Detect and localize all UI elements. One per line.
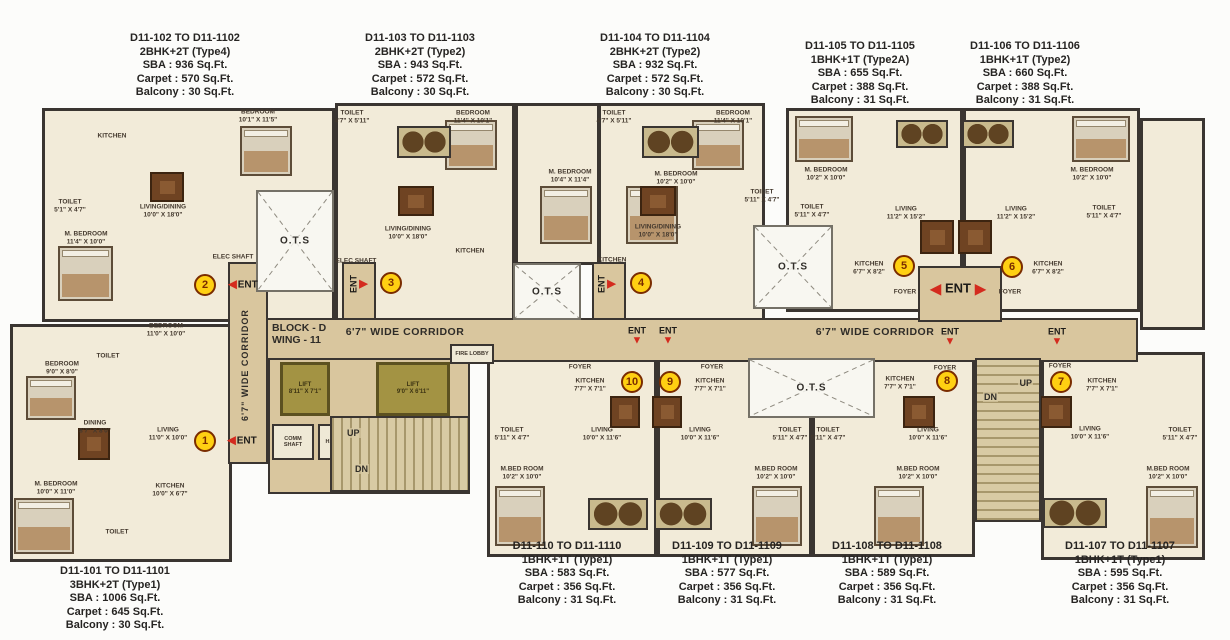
- room-name: LIVING/DINING: [140, 204, 186, 212]
- ent-arrow-left-icon: ◀: [930, 281, 941, 295]
- ent-arrow-right-icon: ▶: [607, 279, 615, 290]
- room-label: KITCHEN6'7" X 8'2": [1032, 261, 1064, 276]
- room-label: M. BEDROOM10'2" X 10'0": [805, 167, 848, 182]
- room-name: TOILET: [1163, 427, 1198, 435]
- unit-info-105: D11-105 TO D11-1105 1BHK+1T (Type2A) SBA…: [765, 40, 955, 108]
- balcony-planter: [896, 120, 948, 148]
- ent-arrow-right-icon: ▶: [975, 281, 986, 295]
- lift-label: LIFT: [299, 382, 312, 389]
- room-name: LIVING: [681, 427, 720, 435]
- room-dimension: 10'0" X 11'6": [909, 434, 948, 442]
- unit-balcony: Balcony : 30 Sq.Ft.: [20, 619, 210, 633]
- unit-sba: SBA : 595 Sq.Ft.: [1025, 567, 1215, 581]
- room-dimension: 8'7" X 8'0": [79, 427, 111, 435]
- room-name: TOILET: [54, 199, 86, 207]
- bed-pillow: [449, 124, 493, 131]
- bed-blanket: [878, 517, 920, 542]
- unit-number-badge: 7: [1050, 371, 1072, 393]
- room-name: BEDROOM: [45, 361, 79, 369]
- bed-pillow: [18, 502, 70, 509]
- unit-info-103: D11-103 TO D11-1103 2BHK+2T (Type2) SBA …: [325, 32, 515, 100]
- bed-furniture: [692, 120, 744, 170]
- room-name: BEDROOM: [147, 323, 186, 331]
- dining-table: [920, 220, 954, 254]
- room-name: ELEC SHAFT: [336, 257, 377, 265]
- ent-arrow-right-icon: ▶: [359, 279, 367, 290]
- unit-number-badge: 2: [194, 274, 216, 296]
- bed-furniture: [14, 498, 74, 554]
- ent-arrow-down-icon: ▼: [1052, 337, 1063, 348]
- room-dimension: 6'7" X 8'2": [853, 268, 885, 276]
- corridor-label-left: 6'7" WIDE CORRIDOR: [330, 326, 480, 338]
- bed-pillow: [756, 490, 798, 497]
- room-label: TOILET5'11" X 4'7": [795, 204, 830, 219]
- room-name: LIVING/DINING: [385, 226, 431, 234]
- unit-range: D11-107 TO D11-1107: [1025, 540, 1215, 554]
- room-name: KITCHEN: [694, 378, 726, 386]
- unit-carpet: Carpet : 572 Sq.Ft.: [560, 73, 750, 87]
- room-name: LIVING: [887, 206, 926, 214]
- room-name: M. BEDROOM: [805, 167, 848, 175]
- room-label: FOYER: [569, 363, 591, 371]
- room-dimension: 10'0" X 18'0": [140, 211, 186, 219]
- room-name: FOYER: [1049, 362, 1071, 370]
- corridor-label-vertical: 6'7" WIDE CORRIDOR: [240, 300, 250, 430]
- room-name: TOILET: [97, 352, 120, 360]
- room-label: FOYER: [1049, 362, 1071, 370]
- unit-range: D11-103 TO D11-1103: [325, 32, 515, 46]
- room-name: TOILET: [495, 427, 530, 435]
- unit-info-108: D11-108 TO D11-1108 1BHK+1T (Type1) SBA …: [792, 540, 982, 608]
- room-dimension: 10'0" X 18'0": [635, 231, 681, 239]
- room-name: LIVING: [997, 206, 1036, 214]
- room-name: M. BEDROOM: [35, 481, 78, 489]
- entrance-marker: ◀ENT▶: [930, 281, 986, 296]
- entrance-marker: ◀ENT: [227, 436, 256, 447]
- room-name: KITCHEN: [884, 376, 916, 384]
- room-dimension: 4'7" X 5'11": [597, 117, 632, 125]
- room-name: KITCHEN: [598, 256, 627, 264]
- room-label: KITCHEN: [98, 132, 127, 140]
- unit-range: D11-105 TO D11-1105: [765, 40, 955, 54]
- bed-pillow: [696, 124, 740, 131]
- bed-furniture: [58, 246, 113, 301]
- ots-label: O.T.S: [776, 262, 810, 273]
- unit-balcony: Balcony : 31 Sq.Ft.: [1025, 594, 1215, 608]
- unit-balcony: Balcony : 30 Sq.Ft.: [560, 86, 750, 100]
- stairs-left: UP DN: [330, 416, 470, 492]
- balcony-planter: [588, 498, 648, 530]
- room-name: TOILET: [335, 110, 370, 118]
- room-name: ELEC SHAFT: [213, 253, 254, 261]
- dining-table: [903, 396, 935, 428]
- room-label: DINING8'7" X 8'0": [79, 420, 111, 435]
- bed-pillow: [30, 380, 72, 387]
- stairs-up-label: UP: [1018, 378, 1033, 388]
- unit-type: 3BHK+2T (Type1): [20, 579, 210, 593]
- ent-label: ENT: [238, 280, 258, 291]
- room-label: M. BEDROOM11'4" X 10'0": [65, 231, 108, 246]
- bed-pillow: [1076, 120, 1126, 127]
- unit-info-101: D11-101 TO D11-1101 3BHK+2T (Type1) SBA …: [20, 565, 210, 633]
- ots-label: O.T.S: [278, 236, 312, 247]
- unit-number-badge: 5: [893, 255, 915, 277]
- unit-number-badge: 3: [380, 272, 402, 294]
- room-name: TOILET: [773, 427, 808, 435]
- entrance-marker: ENT▼: [659, 326, 677, 347]
- unit-type: 1BHK+1T (Type2A): [765, 54, 955, 68]
- lift-dim: 8'11" X 7'1": [289, 389, 321, 396]
- unit-number-badge: 10: [621, 371, 643, 393]
- ots-label: O.T.S: [794, 383, 828, 394]
- room-name: TOILET: [106, 528, 129, 536]
- unit-type: 2BHK+2T (Type2): [325, 46, 515, 60]
- room-name: M.BED ROOM: [897, 466, 940, 474]
- room-label: M.BED ROOM10'2" X 10'0": [897, 466, 940, 481]
- ent-arrow-down-icon: ▼: [632, 336, 643, 347]
- room-label: BEDROOM11'4" X 10'1": [454, 110, 493, 125]
- unit-sba: SBA : 932 Sq.Ft.: [560, 59, 750, 73]
- room-name: M.BED ROOM: [501, 466, 544, 474]
- room-label: BEDROOM10'1" X 11'5": [239, 109, 278, 124]
- room-label: FOYER: [999, 288, 1021, 296]
- room-name: KITCHEN: [98, 132, 127, 140]
- ent-label: ENT: [945, 281, 971, 296]
- balcony-planter: [1043, 498, 1107, 528]
- room-label: M. BEDROOM10'2" X 10'0": [655, 171, 698, 186]
- room-dimension: 6'7" X 8'2": [1032, 268, 1064, 276]
- room-dimension: 10'0" X 18'0": [385, 233, 431, 241]
- room-dimension: 10'0" X 11'6": [1071, 433, 1110, 441]
- room-dimension: 11'2" X 15'2": [887, 213, 926, 221]
- balcony-planter: [654, 498, 712, 530]
- room-dimension: 10'2" X 10'0": [501, 473, 544, 481]
- balcony-planter: [642, 126, 699, 158]
- corridor-horizontal: [266, 318, 1138, 362]
- entrance-marker: ENT▶: [348, 275, 367, 293]
- dining-table: [150, 172, 184, 202]
- room-dimension: 11'4" X 10'1": [714, 117, 753, 125]
- ots-label: O.T.S: [530, 286, 564, 297]
- unit-number-badge: 9: [659, 371, 681, 393]
- bed-furniture: [540, 186, 592, 244]
- room-label: TOILET5'11" X 4'7": [745, 189, 780, 204]
- unit-carpet: Carpet : 388 Sq.Ft.: [765, 81, 955, 95]
- room-dimension: 10'2" X 10'0": [897, 473, 940, 481]
- room-label: LIVING11'0" X 10'0": [149, 427, 188, 442]
- entrance-marker: ENT▶: [596, 275, 615, 293]
- room-label: M.BED ROOM10'2" X 10'0": [755, 466, 798, 481]
- ent-label: ENT: [237, 436, 257, 447]
- room-name: KITCHEN: [1086, 378, 1118, 386]
- bed-furniture: [795, 116, 853, 162]
- room-label: TOILET5'11" X 4'7": [495, 427, 530, 442]
- bed-furniture: [445, 120, 497, 170]
- unit-info-106: D11-106 TO D11-1106 1BHK+1T (Type2) SBA …: [930, 40, 1120, 108]
- unit-balcony: Balcony : 30 Sq.Ft.: [90, 86, 280, 100]
- room-dimension: 10'2" X 10'0": [805, 174, 848, 182]
- room-dimension: 7'7" X 7'1": [574, 385, 606, 393]
- room-name: M. BEDROOM: [1071, 167, 1114, 175]
- unit-info-102: D11-102 TO D11-1102 2BHK+2T (Type4) SBA …: [90, 32, 280, 100]
- room-label: ELEC SHAFT: [213, 253, 254, 261]
- room-name: M. BEDROOM: [655, 171, 698, 179]
- unit-carpet: Carpet : 645 Sq.Ft.: [20, 606, 210, 620]
- lift-2: LIFT 9'0" X 6'11": [376, 362, 450, 416]
- bed-furniture: [26, 376, 76, 420]
- ent-arrow-left-icon: ◀: [228, 280, 236, 291]
- lift-dim: 9'0" X 6'11": [397, 389, 429, 396]
- room-name: M. BEDROOM: [549, 169, 592, 177]
- bed-blanket: [449, 145, 493, 166]
- lift-label: LIFT: [407, 382, 420, 389]
- room-dimension: 9'0" X 8'0": [45, 368, 79, 376]
- room-label: TOILET5'11" X 4'7": [773, 427, 808, 442]
- room-name: FOYER: [701, 363, 723, 371]
- stairs-up-label: UP: [346, 428, 361, 438]
- unit-sba: SBA : 655 Sq.Ft.: [765, 67, 955, 81]
- bed-pillow: [878, 490, 920, 497]
- room-label: KITCHEN7'7" X 7'1": [694, 378, 726, 393]
- room-label: LIVING11'2" X 15'2": [997, 206, 1036, 221]
- room-label: LIVING10'0" X 11'6": [1071, 426, 1110, 441]
- unit-balcony: Balcony : 31 Sq.Ft.: [930, 94, 1120, 108]
- room-name: M.BED ROOM: [755, 466, 798, 474]
- room-name: DINING: [79, 420, 111, 428]
- ots-shaft: O.T.S: [748, 358, 875, 418]
- room-dimension: 5'11" X 4'7": [1163, 434, 1198, 442]
- comm-shaft-label: COMM SHAFT: [275, 436, 311, 448]
- dining-table: [958, 220, 992, 254]
- room-dimension: 10'2" X 10'0": [1071, 174, 1114, 182]
- unit-carpet: Carpet : 356 Sq.Ft.: [792, 581, 982, 595]
- room-label: TOILET: [106, 528, 129, 536]
- bed-blanket: [1076, 139, 1126, 158]
- unit-info-107: D11-107 TO D11-1107 1BHK+1T (Type1) SBA …: [1025, 540, 1215, 608]
- room-dimension: 7'7" X 7'1": [694, 385, 726, 393]
- corridor-label-right: 6'7" WIDE CORRIDOR: [800, 326, 950, 338]
- room-dimension: 11'4" X 10'1": [454, 117, 493, 125]
- room-label: TOILET: [97, 352, 120, 360]
- room-name: FOYER: [999, 288, 1021, 296]
- dining-table: [610, 396, 640, 428]
- room-label: FOYER: [701, 363, 723, 371]
- room-label: KITCHEN6'7" X 8'2": [853, 261, 885, 276]
- room-name: M.BED ROOM: [1147, 466, 1190, 474]
- room-dimension: 11'0" X 10'0": [147, 330, 186, 338]
- unit-carpet: Carpet : 356 Sq.Ft.: [1025, 581, 1215, 595]
- room-name: M. BEDROOM: [65, 231, 108, 239]
- room-label: KITCHEN7'7" X 7'1": [574, 378, 606, 393]
- unit-balcony: Balcony : 30 Sq.Ft.: [325, 86, 515, 100]
- unit-number-badge: 1: [194, 430, 216, 452]
- fire-lobby: FIRE LOBBY: [450, 344, 494, 364]
- room-dimension: 11'2" X 15'2": [997, 213, 1036, 221]
- room-name: KITCHEN: [1032, 261, 1064, 269]
- unit-sba: SBA : 589 Sq.Ft.: [792, 567, 982, 581]
- room-name: TOILET: [1087, 205, 1122, 213]
- room-dimension: 10'1" X 11'5": [239, 116, 278, 124]
- room-dimension: 10'2" X 10'0": [655, 178, 698, 186]
- unit-type: 1BHK+1T (Type1): [792, 554, 982, 568]
- unit-carpet: Carpet : 388 Sq.Ft.: [930, 81, 1120, 95]
- bed-pillow: [1150, 490, 1194, 497]
- unit-type: 1BHK+1T (Type2): [930, 54, 1120, 68]
- room-label: LIVING/DINING10'0" X 18'0": [140, 204, 186, 219]
- bed-furniture: [240, 126, 292, 176]
- room-dimension: 5'11" X 4'7": [795, 211, 830, 219]
- bed-blanket: [244, 151, 288, 172]
- room-dimension: 7'7" X 7'1": [1086, 385, 1118, 393]
- room-name: BEDROOM: [454, 110, 493, 118]
- room-dimension: 4'7" X 5'11": [335, 117, 370, 125]
- room-dimension: 5'11" X 4'7": [1087, 212, 1122, 220]
- lift-1: LIFT 8'11" X 7'1": [280, 362, 330, 416]
- bed-blanket: [799, 139, 849, 158]
- room-label: FOYER: [894, 288, 916, 296]
- ots-shaft: O.T.S: [753, 225, 833, 309]
- unit-type: 2BHK+2T (Type2): [560, 46, 750, 60]
- unit-balcony: Balcony : 31 Sq.Ft.: [765, 94, 955, 108]
- balcony-planter: [397, 126, 451, 158]
- room-label: LIVING/DINING10'0" X 18'0": [385, 226, 431, 241]
- bed-blanket: [30, 398, 72, 416]
- unit-number-badge: 8: [936, 370, 958, 392]
- dining-table: [1040, 396, 1072, 428]
- unit-sba: SBA : 943 Sq.Ft.: [325, 59, 515, 73]
- room-name: LIVING: [909, 427, 948, 435]
- stairs-dn-label: DN: [983, 392, 998, 402]
- unit-number-badge: 4: [630, 272, 652, 294]
- room-dimension: 5'11" X 4'7": [773, 434, 808, 442]
- bed-furniture: [495, 486, 545, 546]
- entrance-marker: ENT▼: [628, 326, 646, 347]
- entrance-marker: ENT▼: [1048, 327, 1066, 348]
- bed-blanket: [499, 517, 541, 542]
- room-label: KITCHEN10'0" X 6'7": [152, 483, 187, 498]
- room-label: M.BED ROOM10'2" X 10'0": [501, 466, 544, 481]
- ots-shaft: O.T.S: [513, 263, 581, 320]
- unit-range: D11-104 TO D11-1104: [560, 32, 750, 46]
- bed-furniture: [874, 486, 924, 546]
- room-name: TOILET: [795, 204, 830, 212]
- room-label: M.BED ROOM10'2" X 10'0": [1147, 466, 1190, 481]
- room-label: TOILET5'11" X 4'7": [811, 427, 846, 442]
- unit-type: 2BHK+2T (Type4): [90, 46, 280, 60]
- unit-range: D11-106 TO D11-1106: [930, 40, 1120, 54]
- room-name: BEDROOM: [714, 110, 753, 118]
- room-label: TOILET4'7" X 5'11": [597, 110, 632, 125]
- bed-pillow: [244, 130, 288, 137]
- ent-label: ENT: [596, 275, 606, 293]
- room-dimension: 7'7" X 7'1": [884, 383, 916, 391]
- room-dimension: 10'0" X 6'7": [152, 490, 187, 498]
- room-label: KITCHEN: [456, 247, 485, 255]
- bed-pillow: [544, 190, 588, 197]
- room-dimension: 5'11" X 4'7": [495, 434, 530, 442]
- room-name: TOILET: [745, 189, 780, 197]
- room-label: BEDROOM11'4" X 10'1": [714, 110, 753, 125]
- unit-sba: SBA : 936 Sq.Ft.: [90, 59, 280, 73]
- room-label: KITCHEN7'7" X 7'1": [1086, 378, 1118, 393]
- dining-table: [652, 396, 682, 428]
- unit-range: D11-108 TO D11-1108: [792, 540, 982, 554]
- fire-lobby-label: FIRE LOBBY: [455, 351, 488, 357]
- ent-arrow-down-icon: ▼: [945, 337, 956, 348]
- bed-blanket: [18, 527, 70, 550]
- room-label: TOILET5'1" X 4'7": [54, 199, 86, 214]
- unit-number-badge: 6: [1001, 256, 1023, 278]
- ent-arrow-down-icon: ▼: [663, 336, 674, 347]
- room-name: TOILET: [597, 110, 632, 118]
- room-label: LIVING10'0" X 11'6": [909, 427, 948, 442]
- ent-arrow-left-icon: ◀: [227, 436, 235, 447]
- unit-type: 1BHK+1T (Type1): [1025, 554, 1215, 568]
- bed-furniture: [752, 486, 802, 546]
- room-label: ELEC SHAFT: [336, 257, 377, 265]
- room-name: LIVING: [149, 427, 188, 435]
- balcony-planter: [962, 120, 1014, 148]
- room-name: FOYER: [894, 288, 916, 296]
- room-label: BEDROOM11'0" X 10'0": [147, 323, 186, 338]
- room-dimension: 10'2" X 10'0": [755, 473, 798, 481]
- dining-table: [398, 186, 434, 216]
- entrance-marker: ◀ENT: [228, 280, 257, 291]
- bed-blanket: [696, 145, 740, 166]
- bed-pillow: [499, 490, 541, 497]
- stairs-right: DN UP: [975, 358, 1041, 522]
- ots-shaft: O.T.S: [256, 190, 334, 292]
- unit-range: D11-101 TO D11-1101: [20, 565, 210, 579]
- room-label: M. BEDROOM10'4" X 11'4": [549, 169, 592, 184]
- comm-shaft: COMM SHAFT: [272, 424, 314, 460]
- room-name: KITCHEN: [574, 378, 606, 386]
- room-label: LIVING10'0" X 11'6": [681, 427, 720, 442]
- room-dimension: 10'4" X 11'4": [549, 176, 592, 184]
- room-dimension: 5'1" X 4'7": [54, 206, 86, 214]
- room-label: KITCHEN: [598, 256, 627, 264]
- unit-balcony: Balcony : 31 Sq.Ft.: [792, 594, 982, 608]
- room-dimension: 5'11" X 4'7": [745, 196, 780, 204]
- unit-106-ext-area: [1140, 118, 1205, 330]
- room-dimension: 5'11" X 4'7": [811, 434, 846, 442]
- unit-info-104: D11-104 TO D11-1104 2BHK+2T (Type2) SBA …: [560, 32, 750, 100]
- room-name: KITCHEN: [456, 247, 485, 255]
- room-label: TOILET4'7" X 5'11": [335, 110, 370, 125]
- room-dimension: 10'2" X 10'0": [1147, 473, 1190, 481]
- bed-pillow: [799, 120, 849, 127]
- entrance-marker: ENT▼: [941, 327, 959, 348]
- unit-sba: SBA : 1006 Sq.Ft.: [20, 592, 210, 606]
- stairs-dn-label: DN: [354, 464, 369, 474]
- room-dimension: 11'4" X 10'0": [65, 238, 108, 246]
- room-dimension: 11'0" X 10'0": [149, 434, 188, 442]
- room-label: BEDROOM9'0" X 8'0": [45, 361, 79, 376]
- bed-furniture: [1072, 116, 1130, 162]
- room-name: LIVING: [583, 427, 622, 435]
- room-dimension: 10'0" X 11'0": [35, 488, 78, 496]
- ent-label: ENT: [348, 275, 358, 293]
- room-label: M. BEDROOM10'2" X 10'0": [1071, 167, 1114, 182]
- room-label: LIVING/DINING10'0" X 18'0": [635, 224, 681, 239]
- unit-range: D11-102 TO D11-1102: [90, 32, 280, 46]
- bed-blanket: [62, 274, 109, 297]
- dining-table: [640, 186, 676, 216]
- room-name: KITCHEN: [152, 483, 187, 491]
- room-name: FOYER: [569, 363, 591, 371]
- room-label: TOILET5'11" X 4'7": [1087, 205, 1122, 220]
- room-name: LIVING/DINING: [635, 224, 681, 232]
